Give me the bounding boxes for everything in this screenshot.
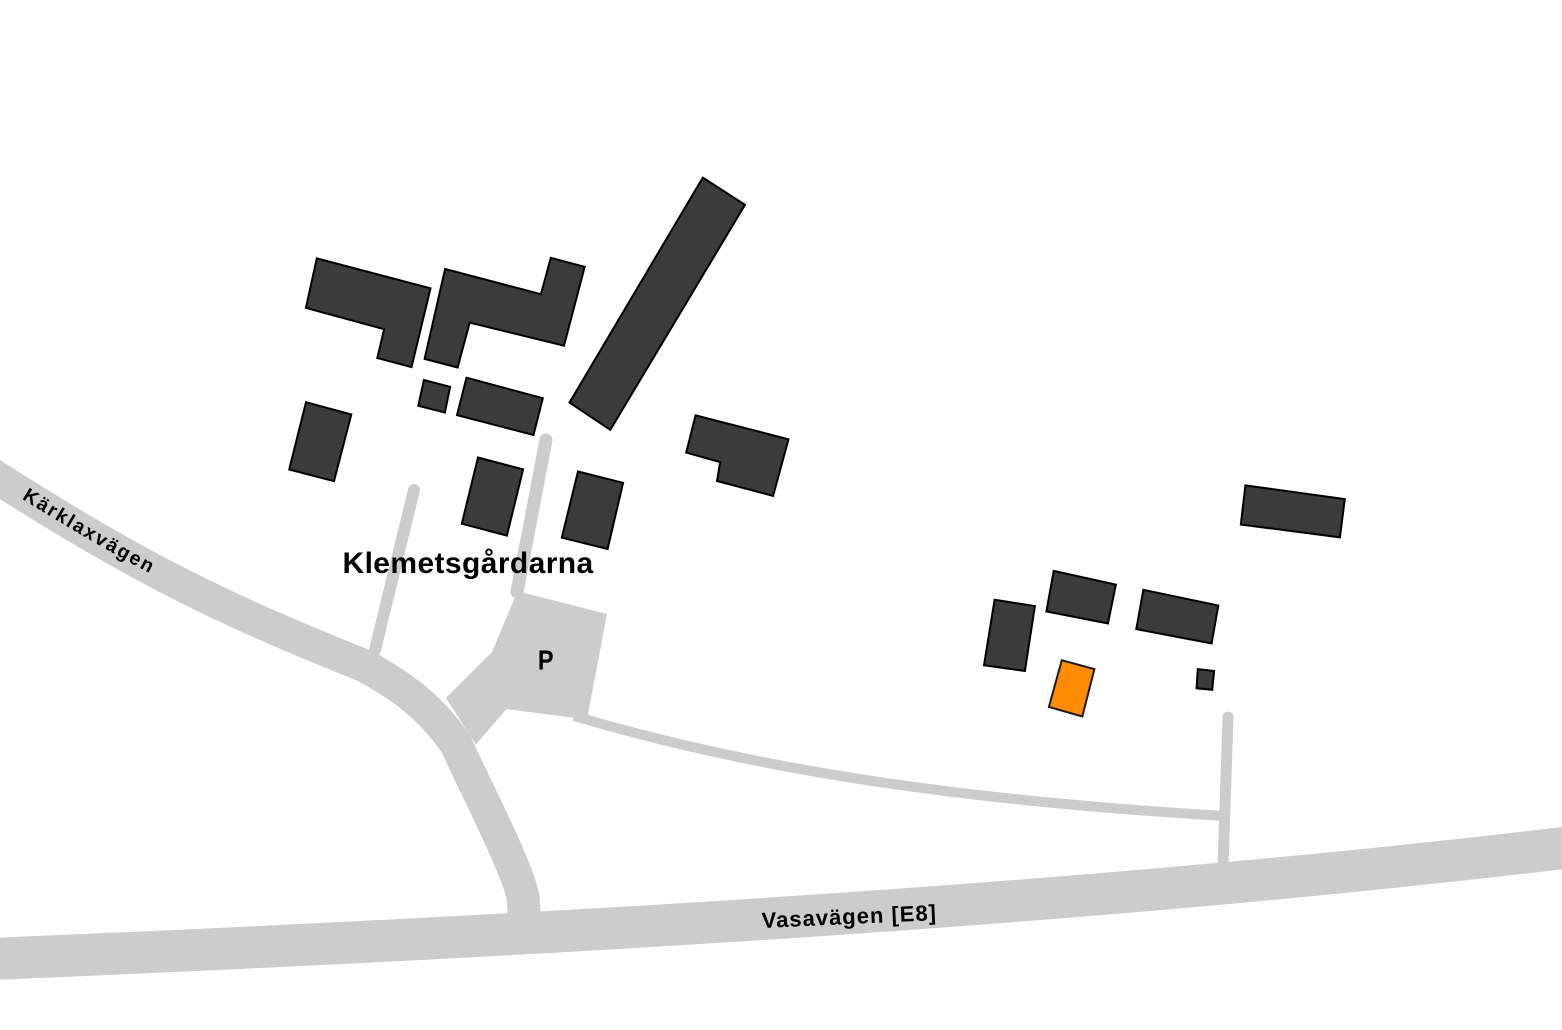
svg-text:P: P [538,645,554,675]
svg-text:Kärklaxvägen: Kärklaxvägen [19,484,159,578]
svg-text:Klemetsgårdarna: Klemetsgårdarna [343,547,594,580]
